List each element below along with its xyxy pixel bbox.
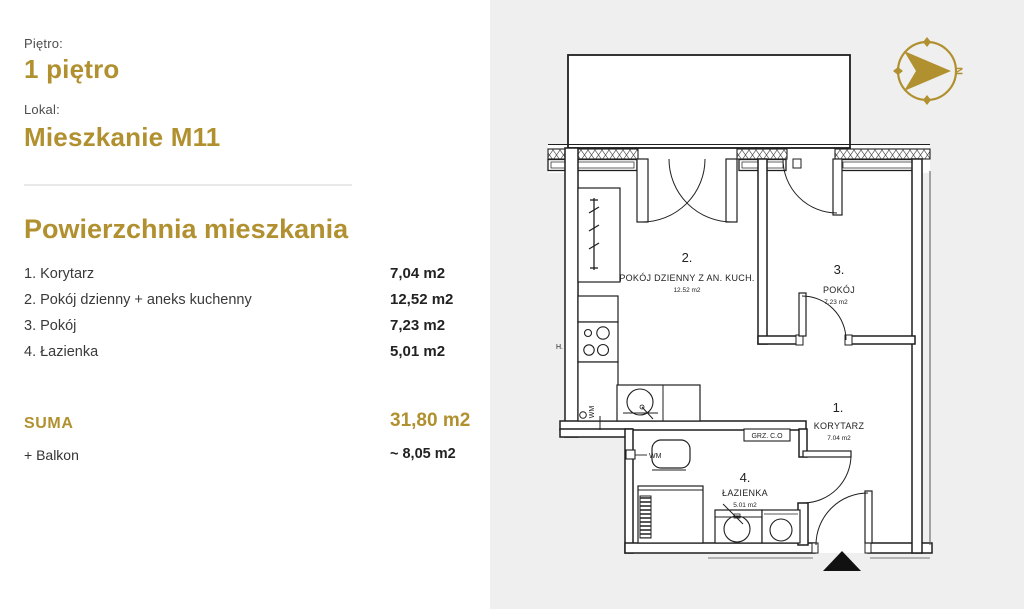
sink-counter (617, 385, 700, 421)
kitchen-washer-label: WM (589, 406, 596, 419)
total-value: 31,80 m2 (390, 410, 470, 432)
heating-radiator-label: GRZ. C.O (751, 433, 783, 440)
area-row-value: 5,01 m2 (390, 343, 445, 360)
area-row-value: 12,52 m2 (390, 291, 453, 308)
floorplan-svg: GRZ. C.O 2. POKÓJ DZIENNY Z AN. KUCH. 12… (490, 0, 1024, 609)
compass-icon: N (893, 37, 964, 105)
washbasin-icon (715, 504, 762, 543)
wall-left (565, 148, 578, 437)
area-row-value: 7,23 m2 (390, 317, 445, 334)
info-panel: Piętro: 1 piętro Lokal: Mieszkanie M11 P… (0, 0, 490, 609)
area-row-label: 2. Pokój dzienny + aneks kuchenny (24, 292, 252, 308)
svg-text:7.23 m2: 7.23 m2 (824, 299, 848, 306)
wall-room3-south-b (847, 336, 915, 344)
balcony (568, 55, 850, 148)
area-row-label: 3. Pokój (24, 318, 76, 334)
radiator-cabinet (578, 188, 620, 282)
floor-value: 1 piętro (24, 54, 120, 85)
area-row: 1. Korytarz 7,04 m2 (0, 262, 490, 288)
unit-label: Lokal: (24, 102, 60, 117)
kitchen-cabinet (578, 296, 618, 322)
entrance-arrow-icon (823, 551, 861, 571)
compass-north-label: N (952, 67, 964, 75)
unit-value: Mieszkanie M11 (24, 122, 220, 153)
hood-label: H. (556, 344, 563, 351)
balcony-value: ~ 8,05 m2 (390, 446, 456, 462)
page: Piętro: 1 piętro Lokal: Mieszkanie M11 P… (0, 0, 1024, 609)
stove-icon (578, 322, 618, 362)
wall-right (912, 159, 922, 553)
area-row-label: 4. Łazienka (24, 344, 98, 360)
window-1 (548, 160, 637, 171)
floorplan-panel: GRZ. C.O 2. POKÓJ DZIENNY Z AN. KUCH. 12… (490, 0, 1024, 609)
shower-area (638, 486, 703, 543)
svg-text:POKÓJ: POKÓJ (823, 285, 855, 295)
total-label: SUMA (24, 415, 74, 433)
area-row: 2. Pokój dzienny + aneks kuchenny 12,52 … (0, 288, 490, 314)
towel-radiator-icon (640, 496, 651, 538)
areas-title: Powierzchnia mieszkania (24, 214, 348, 245)
heating-radiator-box: GRZ. C.O (744, 429, 790, 441)
svg-text:4.: 4. (740, 470, 751, 485)
washing-machine-icon (762, 510, 800, 543)
svg-text:3.: 3. (834, 262, 845, 277)
svg-text:2.: 2. (682, 250, 693, 265)
washer-connection-box (626, 450, 635, 459)
window-3 (840, 160, 918, 171)
wall-bath-west (625, 429, 633, 553)
area-row: 3. Pokój 7,23 m2 (0, 314, 490, 340)
svg-text:KORYTARZ: KORYTARZ (814, 421, 865, 431)
balcony-label: + Balkon (24, 447, 79, 463)
area-row: 4. Łazienka 5,01 m2 (0, 340, 490, 366)
svg-text:5.01 m2: 5.01 m2 (733, 502, 757, 509)
svg-text:POKÓJ DZIENNY Z AN. KUCH.: POKÓJ DZIENNY Z AN. KUCH. (619, 273, 754, 283)
svg-text:7.04 m2: 7.04 m2 (827, 435, 851, 442)
area-row-value: 7,04 m2 (390, 265, 445, 282)
svg-text:ŁAZIENKA: ŁAZIENKA (722, 488, 768, 498)
wall-bottom-left (625, 543, 815, 553)
wall-step-west (560, 429, 632, 437)
area-row-label: 1. Korytarz (24, 266, 94, 282)
divider (24, 184, 352, 186)
wall-room3-south-a (758, 336, 802, 344)
svg-text:1.: 1. (833, 400, 844, 415)
svg-text:12.52 m2: 12.52 m2 (673, 287, 700, 294)
bath-washer-label: WM (649, 453, 662, 460)
floor-label: Piętro: (24, 36, 63, 51)
wall-partition-2-3 (758, 159, 767, 344)
